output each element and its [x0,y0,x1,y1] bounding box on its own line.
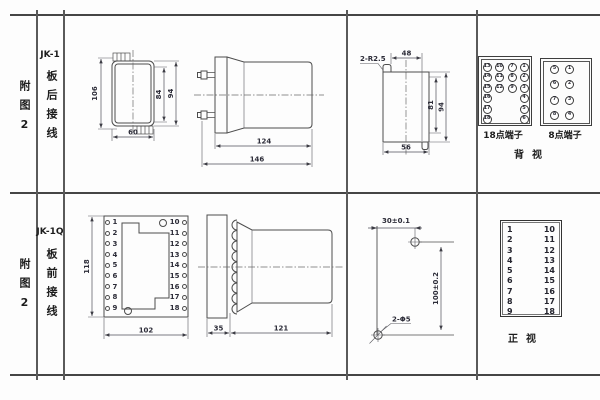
t8-col2: 1234 [565,65,574,120]
table-col-line-2 [63,10,65,380]
drilling-template-drawing: 30±0.1 100±0.2 2-Φ5 [358,212,470,354]
wiring-label-row1: 板后接线 [43,70,59,146]
terminal-circle: 15 [483,84,492,93]
terminal-circle: 12 [495,84,504,93]
terminal-circle: 11 [495,73,504,82]
table-col-line-1 [36,10,38,380]
front-view-label: 正视 [508,330,544,345]
terminal-item: 13 [164,249,187,260]
dim-94: 94 [167,89,175,99]
terminal-circle: 8 [550,111,559,120]
terminal-circle: 5 [550,65,559,74]
terminal-item: 9 [105,303,123,314]
terminal-item: 7 [105,281,123,292]
note-2-phi5: 2-Φ5 [392,316,411,324]
dim-35: 35 [214,325,224,333]
t18-col3: 789 [508,63,517,93]
t18-col4: 123456 [520,63,529,124]
figure-label-row1: 附图2 [16,80,32,139]
terminal-circle: 10 [495,63,504,72]
table-divider-middle [10,192,600,194]
dim-60: 60 [128,129,138,137]
model-label-jk1: JK-1 [36,50,64,60]
terminal-number: 1 [507,225,513,235]
wiring-label-row2: 板前接线 [43,248,59,324]
front-terminals-right: 101112131415161718 [164,217,187,313]
t18-col2: 101112 [495,63,504,93]
terminal-circle: 7 [550,96,559,105]
terminal-list-box: 123456789 101112131415161718 [500,220,562,317]
dimensions: 2-R2.5 48 94 81 56 [360,50,450,156]
case-outline [198,215,343,318]
figure-label-row2: 附图2 [16,258,32,317]
terminal-number: 8 [507,297,513,307]
terminal-circle: 3 [565,96,574,105]
terminal-number: 7 [507,287,513,297]
terminal-item: 12 [164,238,187,249]
panel-cutout-drawing: 2-R2.5 48 94 81 56 [352,48,464,160]
panel-side-view-drawing: 35 121 [198,208,345,348]
terminal-item: 14 [164,260,187,271]
terminal-item: 18 [164,303,187,314]
case-outline [112,50,154,135]
table-border-bottom [10,374,600,376]
terminal-item: 6 [105,271,123,282]
terminal-number: 3 [507,246,513,256]
terminal-number: 15 [544,276,555,286]
terminal-circle: 18 [483,115,492,124]
table-border-top [10,14,600,16]
label-18-point: 18点端子 [474,128,532,141]
terminal-circle: 6 [550,80,559,89]
terminal-number: 5 [507,266,513,276]
terminal-circle: 4 [520,94,529,103]
terminal-number: 4 [507,256,513,266]
terminal-number: 16 [544,287,555,297]
t8-col1: 5678 [550,65,559,120]
terminal-number: 11 [544,235,555,245]
terminal-item: 16 [164,281,187,292]
terminal-circle: 16 [483,94,492,103]
terminal-circle: 5 [520,105,529,114]
terminal-circle: 9 [508,84,517,93]
dimensions: 106 84 94 60 [91,58,179,141]
dimensions: 30±0.1 100±0.2 2-Φ5 [368,217,441,332]
terminal-circle: 2 [565,80,574,89]
terminal-circle: 6 [520,115,529,124]
terminal-list-left: 123456789 [507,225,513,318]
dim-56: 56 [401,144,411,152]
terminal-circle: 13 [483,63,492,72]
terminal-number: 10 [544,225,555,235]
terminal-circle: 1 [565,65,574,74]
dimensions: 35 121 [207,304,332,337]
dim-121: 121 [274,325,289,333]
terminal-number: 6 [507,276,513,286]
terminal-number: 18 [544,307,555,317]
terminal-circle: 3 [520,84,529,93]
terminal-item: 10 [164,217,187,228]
terminal-circle: 4 [565,111,574,120]
dim-94: 94 [438,102,446,112]
dim-146: 146 [250,156,265,164]
terminal-circle: 14 [483,73,492,82]
terminal-number: 12 [544,246,555,256]
model-label-jk1q: JK-1Q [36,227,64,237]
case-front-view-drawing: 106 84 94 60 [86,46,192,150]
dim-106: 106 [91,86,99,101]
dim-124: 124 [257,138,272,146]
terminal-item: 15 [164,271,187,282]
terminal-item: 4 [105,249,123,260]
back-view-label: 背视 [514,146,550,161]
dim-118: 118 [84,259,91,274]
terminal-block-8: 5678 1234 [540,58,592,126]
terminal-number: 9 [507,307,513,317]
front-terminals-left: 123456789 [105,217,123,313]
terminal-item: 17 [164,292,187,303]
terminal-circle: 17 [483,105,492,114]
terminal-item: 3 [105,238,123,249]
terminal-item: 11 [164,228,187,239]
terminal-list-right: 101112131415161718 [544,225,555,318]
figure-page: 附图2 JK-1 板后接线 附图2 JK-1Q 板前接线 106 [0,0,600,400]
terminal-number: 14 [544,266,555,276]
terminal-circle: 7 [508,63,517,72]
terminal-item: 1 [105,217,123,228]
t18-col1: 131415161718 [483,63,492,124]
terminal-item: 5 [105,260,123,271]
note-2-r2.5: 2-R2.5 [360,55,386,63]
dim-30: 30±0.1 [382,217,410,225]
terminal-number: 17 [544,297,555,307]
dim-48: 48 [402,50,412,58]
table-col-line-3 [346,10,348,380]
terminal-circle: 8 [508,73,517,82]
terminal-number: 2 [507,235,513,245]
terminal-block-18: 131415161718 101112 789 123456 [478,56,532,126]
terminal-circle: 1 [520,63,529,72]
terminal-item: 8 [105,292,123,303]
dim-102: 102 [139,327,154,335]
dim-81: 81 [427,100,435,110]
case-outline [194,57,324,133]
case-side-view-drawing: 124 146 [194,46,326,171]
terminal-number: 13 [544,256,555,266]
terminal-circle: 2 [520,73,529,82]
label-8-point: 8点端子 [538,128,592,141]
dim-84: 84 [155,90,163,100]
dim-100: 100±0.2 [432,272,440,305]
terminal-item: 2 [105,228,123,239]
